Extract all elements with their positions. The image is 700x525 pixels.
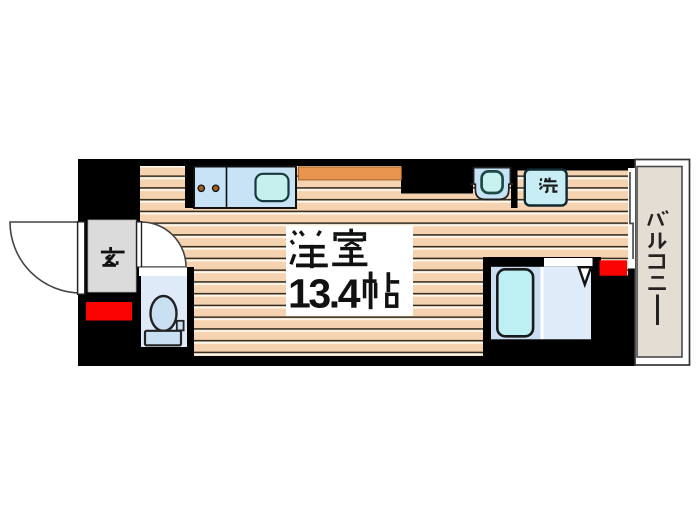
svg-text:13.4: 13.4 [288,271,361,317]
